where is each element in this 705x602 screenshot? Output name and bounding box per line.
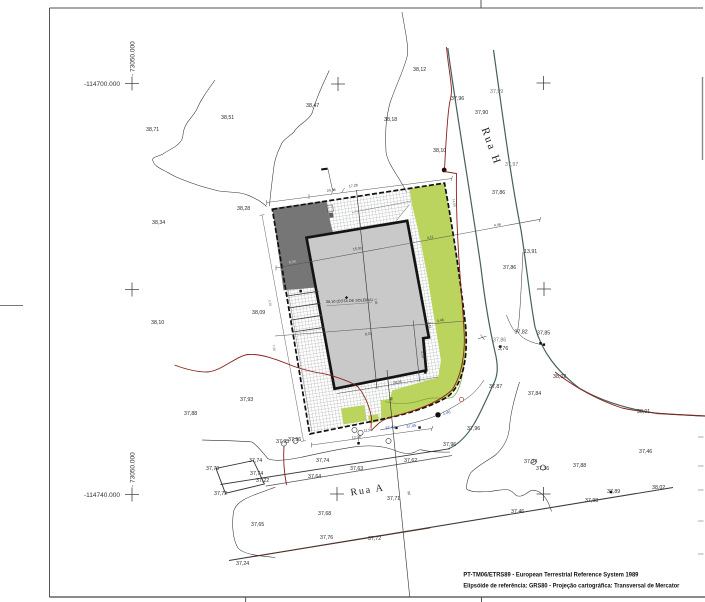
svg-text:37,96: 37,96 bbox=[467, 426, 480, 432]
svg-text:37,68: 37,68 bbox=[318, 511, 331, 517]
svg-text:37,64: 37,64 bbox=[308, 474, 321, 480]
svg-text:38,10: 38,10 bbox=[151, 320, 164, 326]
svg-text:37,99: 37,99 bbox=[490, 89, 503, 95]
svg-text:37,72: 37,72 bbox=[214, 491, 227, 497]
svg-text:37,97: 37,97 bbox=[505, 162, 518, 168]
svg-text:37,86: 37,86 bbox=[492, 190, 505, 196]
svg-text:37,34: 37,34 bbox=[524, 459, 537, 465]
svg-text:-114700.000: -114700.000 bbox=[84, 81, 120, 88]
svg-text:37,96: 37,96 bbox=[288, 437, 301, 443]
svg-text:37,96: 37,96 bbox=[443, 442, 456, 448]
svg-text:38,09: 38,09 bbox=[252, 310, 265, 316]
svg-text:38,71: 38,71 bbox=[146, 127, 159, 133]
svg-text:37,90: 37,90 bbox=[475, 110, 488, 116]
svg-text:37,36: 37,36 bbox=[536, 466, 549, 472]
svg-text:38,02: 38,02 bbox=[553, 374, 566, 380]
svg-text:37,96: 37,96 bbox=[451, 96, 464, 102]
svg-text:37,74: 37,74 bbox=[250, 471, 263, 477]
svg-text:37,74: 37,74 bbox=[316, 458, 329, 464]
svg-text:37,82: 37,82 bbox=[515, 330, 528, 336]
svg-text:37,72: 37,72 bbox=[368, 536, 381, 542]
svg-text:3,76: 3,76 bbox=[498, 346, 508, 352]
svg-text:13,91: 13,91 bbox=[524, 249, 537, 255]
svg-text:37,71: 37,71 bbox=[387, 496, 400, 502]
svg-text:37,70: 37,70 bbox=[206, 466, 219, 472]
svg-text:37,89: 37,89 bbox=[607, 489, 620, 495]
svg-text:37,22: 37,22 bbox=[256, 478, 269, 484]
svg-text:- 73050.000: - 73050.000 bbox=[130, 452, 137, 487]
svg-text:38,51: 38,51 bbox=[221, 115, 234, 121]
svg-text:38,18: 38,18 bbox=[384, 117, 397, 123]
svg-text:38,12: 38,12 bbox=[413, 67, 426, 73]
svg-text:37,86: 37,86 bbox=[503, 265, 516, 271]
svg-text:-114740.000: -114740.000 bbox=[84, 492, 120, 499]
svg-text:38,02: 38,02 bbox=[652, 485, 665, 491]
svg-text:37,76: 37,76 bbox=[320, 535, 333, 541]
svg-text:37,86: 37,86 bbox=[493, 338, 506, 344]
svg-text:37,62: 37,62 bbox=[404, 458, 417, 464]
svg-text:38,47: 38,47 bbox=[306, 103, 319, 109]
svg-text:38,10: 38,10 bbox=[433, 148, 446, 154]
svg-text:37,63: 37,63 bbox=[350, 466, 363, 472]
svg-text:37,46: 37,46 bbox=[511, 509, 524, 515]
svg-text:PT-TM06/ETRS89 - European Terr: PT-TM06/ETRS89 - European Terrestrial Re… bbox=[463, 572, 638, 579]
svg-text:37,98: 37,98 bbox=[585, 498, 598, 504]
svg-text:37,88: 37,88 bbox=[184, 411, 197, 417]
svg-text:98: 98 bbox=[407, 491, 412, 495]
svg-text:38,01: 38,01 bbox=[637, 409, 650, 415]
svg-text:37,88: 37,88 bbox=[573, 463, 586, 469]
svg-text:37,65: 37,65 bbox=[251, 522, 264, 528]
svg-text:37,74: 37,74 bbox=[249, 458, 262, 464]
svg-text:37,24: 37,24 bbox=[236, 561, 249, 567]
svg-text:37,46: 37,46 bbox=[639, 449, 652, 455]
svg-text:38,28: 38,28 bbox=[237, 206, 250, 212]
svg-text:- 73050.000: - 73050.000 bbox=[130, 41, 137, 76]
svg-text:38,34: 38,34 bbox=[152, 220, 165, 226]
svg-text:37,87: 37,87 bbox=[489, 384, 502, 390]
svg-text:37,85: 37,85 bbox=[537, 331, 550, 337]
svg-text:37,93: 37,93 bbox=[240, 397, 253, 403]
svg-text:37,84: 37,84 bbox=[528, 391, 541, 397]
svg-text:Elipsóide de referência: GRS80: Elipsóide de referência: GRS80 - Projeçã… bbox=[463, 583, 679, 590]
